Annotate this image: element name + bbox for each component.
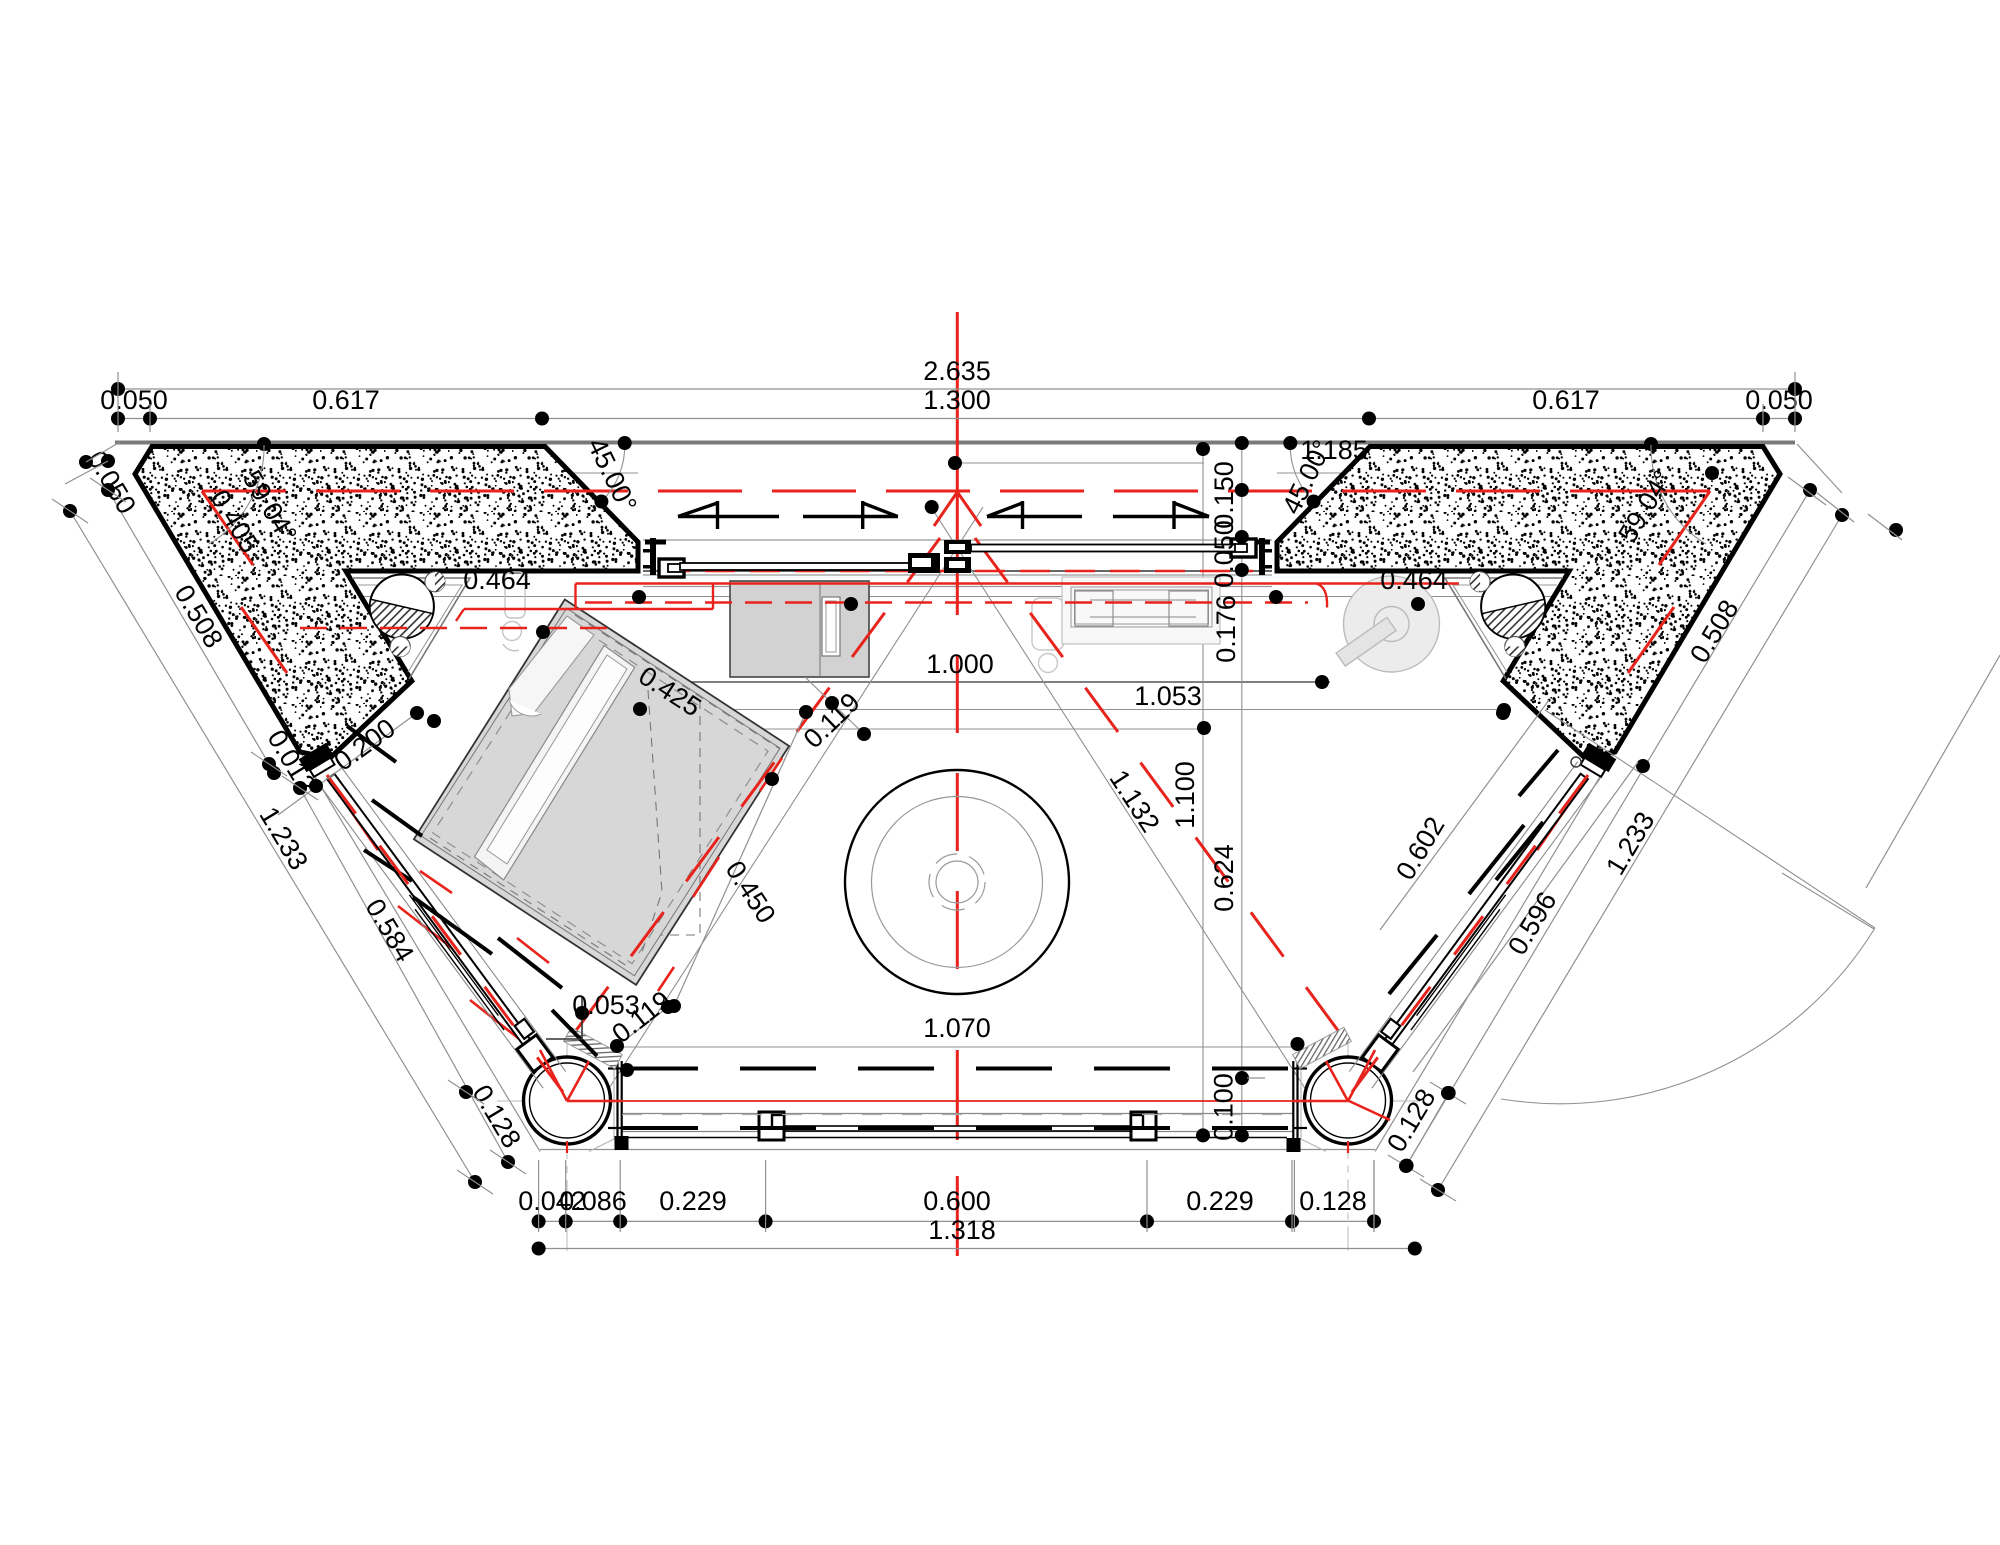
svg-text:1.070: 1.070: [923, 1013, 991, 1043]
svg-text:0.464: 0.464: [1380, 565, 1448, 595]
svg-text:0.617: 0.617: [1532, 385, 1600, 415]
svg-text:1.100: 1.100: [1170, 761, 1200, 829]
svg-text:0.229: 0.229: [1186, 1186, 1254, 1216]
svg-text:1.000: 1.000: [926, 649, 994, 679]
svg-text:0.050: 0.050: [1745, 385, 1813, 415]
svg-text:0.176: 0.176: [1211, 595, 1241, 663]
svg-text:0.050: 0.050: [1209, 520, 1239, 588]
svg-text:1.318: 1.318: [928, 1215, 996, 1245]
svg-text:0.464: 0.464: [463, 565, 531, 595]
svg-text:0.050: 0.050: [100, 385, 168, 415]
svg-text:0.617: 0.617: [312, 385, 380, 415]
svg-text:0.600: 0.600: [923, 1186, 991, 1216]
svg-text:0.150: 0.150: [1209, 461, 1239, 529]
svg-text:0.086: 0.086: [559, 1186, 627, 1216]
svg-text:1.300: 1.300: [923, 385, 991, 415]
svg-text:0.100: 0.100: [1209, 1073, 1239, 1141]
svg-text:0.128: 0.128: [1299, 1186, 1367, 1216]
svg-text:1.053: 1.053: [1134, 681, 1202, 711]
svg-text:0.229: 0.229: [659, 1186, 727, 1216]
svg-text:2.635: 2.635: [923, 356, 991, 386]
svg-text:0.624: 0.624: [1209, 844, 1239, 912]
